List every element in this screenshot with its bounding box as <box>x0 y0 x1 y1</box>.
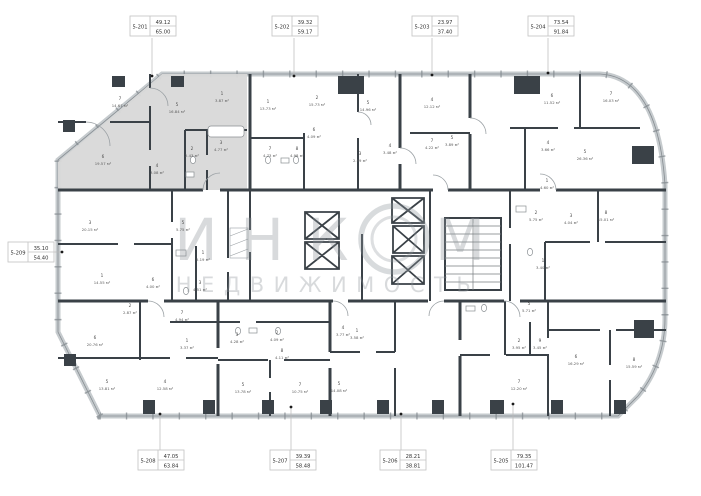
unit-area-total: 38.81 <box>406 464 421 470</box>
svg-text:20.76 м²: 20.76 м² <box>87 342 104 347</box>
svg-text:6: 6 <box>94 335 97 340</box>
callout-leader-dot <box>61 251 64 254</box>
unit-id: 5-201 <box>132 25 147 31</box>
svg-text:3: 3 <box>359 151 362 156</box>
unit-area-total: 91.84 <box>554 30 570 36</box>
svg-text:3.45 м²: 3.45 м² <box>533 345 548 350</box>
watermark-letter: Н <box>240 206 284 274</box>
unit-callout-5-204[interactable]: 5-20473.5491.84 <box>528 16 574 74</box>
svg-text:6: 6 <box>575 354 578 359</box>
svg-text:7: 7 <box>518 379 521 384</box>
svg-text:14.67 м²: 14.67 м² <box>112 103 129 108</box>
svg-text:4: 4 <box>431 97 434 102</box>
svg-text:3: 3 <box>220 140 223 145</box>
svg-text:14.96 м²: 14.96 м² <box>360 107 377 112</box>
svg-text:4.77 м²: 4.77 м² <box>214 147 229 152</box>
svg-text:5: 5 <box>106 379 109 384</box>
unit-callout-5-202[interactable]: 5-20239.3259.17 <box>272 16 318 77</box>
svg-text:2: 2 <box>276 330 279 335</box>
svg-text:12.12 м²: 12.12 м² <box>424 104 441 109</box>
unit-id: 5-203 <box>414 25 429 31</box>
svg-text:4.00 м²: 4.00 м² <box>146 284 161 289</box>
floor-plan-svg: НЕДВИЖИМОСТЬ ИНКМ 714.67 м²516.84 м²13.8… <box>0 0 701 496</box>
svg-text:8: 8 <box>281 348 284 353</box>
svg-text:13.78 м²: 13.78 м² <box>235 389 252 394</box>
svg-text:1: 1 <box>267 99 270 104</box>
svg-text:4.22 м²: 4.22 м² <box>425 145 440 150</box>
svg-text:6: 6 <box>152 277 155 282</box>
svg-text:13.81 м²: 13.81 м² <box>99 386 116 391</box>
unit-area-total: 63.84 <box>164 464 180 470</box>
unit-callout-5-201[interactable]: 5-20149.1265.00 <box>130 16 176 77</box>
svg-text:3.66 м²: 3.66 м² <box>541 147 556 152</box>
svg-text:4: 4 <box>389 143 392 148</box>
svg-text:4.98 м²: 4.98 м² <box>290 153 305 158</box>
svg-text:8: 8 <box>633 357 636 362</box>
svg-text:3: 3 <box>199 280 202 285</box>
svg-text:3.58 м²: 3.58 м² <box>350 335 365 340</box>
svg-text:5.71 м²: 5.71 м² <box>522 308 537 313</box>
unit-area-living: 39.32 <box>298 20 313 26</box>
unit-id: 5-209 <box>10 251 25 257</box>
svg-text:2.99 м²: 2.99 м² <box>353 158 368 163</box>
svg-text:4: 4 <box>164 379 167 384</box>
svg-text:1: 1 <box>202 250 205 255</box>
callout-leader-dot <box>547 72 550 75</box>
svg-text:12.20 м²: 12.20 м² <box>511 386 528 391</box>
svg-text:5: 5 <box>528 301 531 306</box>
svg-text:2: 2 <box>129 303 132 308</box>
svg-text:3.95 м²: 3.95 м² <box>512 345 527 350</box>
svg-text:14.55 м²: 14.55 м² <box>94 280 111 285</box>
svg-text:8: 8 <box>605 210 608 215</box>
callout-leader-dot <box>512 403 515 406</box>
svg-text:3.08 м²: 3.08 м² <box>150 170 165 175</box>
svg-text:7: 7 <box>431 138 434 143</box>
svg-text:5.19 м²: 5.19 м² <box>196 257 211 262</box>
unit-area-living: 39.39 <box>296 454 311 460</box>
svg-text:1: 1 <box>221 91 224 96</box>
svg-text:4.04 м²: 4.04 м² <box>564 220 579 225</box>
unit-id: 5-204 <box>530 25 546 31</box>
svg-text:4.09 м²: 4.09 м² <box>270 337 285 342</box>
unit-callout-5-206[interactable]: 5-20628.2138.81 <box>380 413 426 470</box>
svg-text:4.51 м²: 4.51 м² <box>193 287 208 292</box>
svg-text:7: 7 <box>269 146 272 151</box>
svg-text:1: 1 <box>356 328 359 333</box>
svg-text:3.87 м²: 3.87 м² <box>215 98 230 103</box>
floor-plan-page: НЕДВИЖИМОСТЬ ИНКМ 714.67 м²516.84 м²13.8… <box>0 0 701 496</box>
svg-text:10.75 м²: 10.75 м² <box>292 389 309 394</box>
svg-text:14.08 м²: 14.08 м² <box>331 388 348 393</box>
watermark-letter: И <box>174 206 217 274</box>
svg-text:2: 2 <box>535 210 538 215</box>
svg-text:3: 3 <box>89 220 92 225</box>
svg-text:5.75 м²: 5.75 м² <box>529 217 544 222</box>
svg-text:16.29 м²: 16.29 м² <box>568 361 585 366</box>
unit-callout-5-209[interactable]: 5-20935.1054.40 <box>8 242 63 262</box>
svg-text:4: 4 <box>156 163 159 168</box>
svg-text:15.73 м²: 15.73 м² <box>309 102 326 107</box>
svg-text:4.60 м²: 4.60 м² <box>540 185 555 190</box>
unit-area-total: 101.47 <box>515 464 533 470</box>
svg-text:1: 1 <box>546 178 549 183</box>
svg-text:15.01 м²: 15.01 м² <box>598 217 615 222</box>
svg-text:5: 5 <box>367 100 370 105</box>
svg-text:7: 7 <box>119 96 122 101</box>
svg-text:4: 4 <box>342 325 345 330</box>
svg-text:3: 3 <box>236 332 239 337</box>
svg-text:12.58 м²: 12.58 м² <box>157 386 174 391</box>
svg-text:2: 2 <box>316 95 319 100</box>
callout-leader-dot <box>159 413 162 416</box>
unit-area-total: 65.00 <box>156 30 171 36</box>
svg-text:5: 5 <box>584 149 587 154</box>
svg-text:13.73 м²: 13.73 м² <box>260 106 277 111</box>
unit-id: 5-207 <box>272 459 287 465</box>
svg-text:1: 1 <box>101 273 104 278</box>
svg-text:20.15 м²: 20.15 м² <box>82 227 99 232</box>
svg-text:8: 8 <box>296 146 299 151</box>
svg-text:6: 6 <box>313 127 316 132</box>
svg-text:19.57 м²: 19.57 м² <box>95 161 112 166</box>
svg-text:5: 5 <box>176 102 179 107</box>
unit-id: 5-202 <box>274 25 289 31</box>
svg-text:2.43 м²: 2.43 м² <box>185 153 200 158</box>
unit-area-living: 47.05 <box>164 454 179 460</box>
callout-leader-dot <box>293 75 296 78</box>
unit-id: 5-205 <box>493 459 508 465</box>
svg-text:4.73 м²: 4.73 м² <box>263 153 278 158</box>
svg-text:1: 1 <box>542 258 545 263</box>
svg-text:7: 7 <box>610 91 613 96</box>
svg-text:5: 5 <box>451 135 454 140</box>
unit-area-living: 23.97 <box>438 20 453 26</box>
callout-leader-dot <box>431 74 434 77</box>
unit-area-total: 54.40 <box>34 256 49 262</box>
unit-area-living: 73.54 <box>554 20 570 26</box>
callout-leader-dot <box>290 406 293 409</box>
svg-text:4.28 м²: 4.28 м² <box>230 339 245 344</box>
svg-text:6: 6 <box>102 154 105 159</box>
unit-callout-5-203[interactable]: 5-20323.9737.40 <box>412 16 458 76</box>
svg-text:7: 7 <box>181 310 184 315</box>
svg-text:11.52 м²: 11.52 м² <box>544 100 561 105</box>
watermark-subtitle: НЕДВИЖИМОСТЬ <box>176 273 480 297</box>
svg-text:16.84 м²: 16.84 м² <box>169 109 186 114</box>
unit-area-living: 49.12 <box>156 20 171 26</box>
svg-text:3.48 м²: 3.48 м² <box>383 150 398 155</box>
svg-text:2.87 м²: 2.87 м² <box>123 310 138 315</box>
unit-id: 5-206 <box>382 459 397 465</box>
svg-text:4: 4 <box>547 140 550 145</box>
svg-text:16.03 м²: 16.03 м² <box>603 98 620 103</box>
unit-id: 5-208 <box>140 459 155 465</box>
svg-text:2: 2 <box>518 338 521 343</box>
svg-text:3.77 м²: 3.77 м² <box>336 332 351 337</box>
svg-text:2: 2 <box>191 146 194 151</box>
svg-text:3: 3 <box>570 213 573 218</box>
svg-text:26.36 м²: 26.36 м² <box>577 156 594 161</box>
svg-text:1: 1 <box>186 338 189 343</box>
svg-text:5.75 м²: 5.75 м² <box>176 227 191 232</box>
svg-text:3.37 м²: 3.37 м² <box>180 345 195 350</box>
svg-text:5: 5 <box>242 382 245 387</box>
svg-text:4.11 м²: 4.11 м² <box>275 355 290 360</box>
svg-text:4.94 м²: 4.94 м² <box>175 317 190 322</box>
unit-area-living: 28.21 <box>406 454 421 460</box>
callout-leader-dot <box>400 413 403 416</box>
svg-text:6: 6 <box>551 93 554 98</box>
unit-callout-5-208[interactable]: 5-20847.0563.84 <box>138 413 184 470</box>
svg-text:7: 7 <box>299 382 302 387</box>
svg-text:3.40 м²: 3.40 м² <box>536 265 551 270</box>
svg-text:4.09 м²: 4.09 м² <box>307 134 322 139</box>
svg-text:5: 5 <box>182 220 185 225</box>
watermark-letter: М <box>435 206 485 274</box>
svg-text:5: 5 <box>338 381 341 386</box>
unit-area-living: 79.35 <box>517 454 532 460</box>
svg-text:15.59 м²: 15.59 м² <box>626 364 643 369</box>
unit-area-total: 58.48 <box>296 464 311 470</box>
svg-text:3.89 м²: 3.89 м² <box>445 142 460 147</box>
callout-leader-dot <box>151 75 154 78</box>
unit-area-living: 35.10 <box>34 246 49 252</box>
svg-text:9: 9 <box>539 338 542 343</box>
unit-area-total: 59.17 <box>298 30 313 36</box>
unit-area-total: 37.40 <box>438 30 453 36</box>
watermark-letter: К <box>307 206 348 274</box>
